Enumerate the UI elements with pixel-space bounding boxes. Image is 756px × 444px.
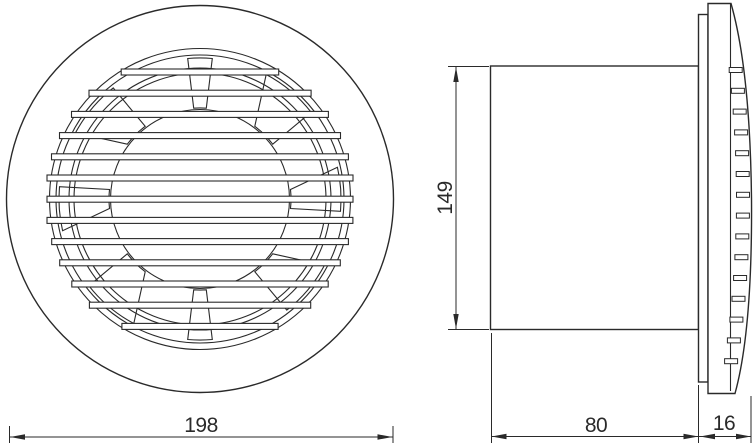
grille-slat bbox=[121, 69, 279, 75]
front-view bbox=[7, 6, 394, 393]
cover-vent-slot bbox=[736, 172, 749, 177]
dimension-label-16: 16 bbox=[713, 412, 735, 435]
cover-vent-slot bbox=[735, 255, 748, 260]
dimension-label-80: 80 bbox=[585, 414, 607, 437]
impeller-blade bbox=[188, 58, 213, 108]
cover-vent-slot bbox=[736, 213, 749, 218]
cover-vent-slot bbox=[734, 276, 747, 281]
grille-slat bbox=[60, 260, 341, 266]
arrow-up bbox=[453, 67, 458, 82]
fan-technical-drawing: 198 149 80 16 bbox=[0, 0, 756, 444]
cover-vent-slot bbox=[729, 68, 742, 73]
arrow-down bbox=[453, 314, 458, 329]
cover-vent-slot bbox=[731, 88, 744, 93]
grille-slat bbox=[72, 111, 329, 117]
dimension-cover-depth: 16 bbox=[699, 396, 752, 443]
front-cover-profile bbox=[708, 4, 752, 394]
dimension-side-depth: 80 bbox=[492, 333, 699, 443]
cover-vent-slot bbox=[736, 151, 749, 156]
cover-vent-slot bbox=[725, 359, 738, 364]
arrow-left bbox=[10, 434, 25, 439]
dimension-label-149: 149 bbox=[434, 181, 457, 215]
grille-slat bbox=[47, 175, 353, 181]
grille-slat bbox=[122, 323, 278, 329]
arrow-right bbox=[736, 434, 751, 439]
impeller-blade bbox=[291, 167, 342, 211]
cover-vent-slot bbox=[733, 109, 746, 114]
dimension-label-198: 198 bbox=[184, 414, 218, 437]
arrow-right bbox=[684, 434, 699, 439]
arrow-left bbox=[492, 434, 507, 439]
cover-vent-slot bbox=[737, 192, 750, 197]
grille-slat bbox=[52, 239, 349, 245]
arrow-right bbox=[378, 434, 393, 439]
grille-slat bbox=[47, 196, 353, 202]
side-view bbox=[491, 4, 752, 394]
impeller-blade bbox=[59, 187, 110, 231]
cover-vent-slot bbox=[736, 234, 749, 239]
grille-slat bbox=[89, 302, 310, 308]
grille-slat bbox=[60, 133, 341, 139]
cover-vent-slot bbox=[727, 338, 740, 343]
cover-vent-slot bbox=[732, 296, 745, 301]
duct-body bbox=[491, 66, 699, 330]
grille-slat bbox=[89, 90, 311, 96]
grille-slat bbox=[52, 154, 349, 160]
cover-vent-slot bbox=[735, 130, 748, 135]
cover-vent-slot bbox=[730, 317, 743, 322]
dimension-side-height: 149 bbox=[434, 67, 489, 330]
impeller-blade bbox=[188, 290, 213, 340]
dimension-front-diameter: 198 bbox=[10, 414, 394, 443]
mounting-flange bbox=[699, 15, 709, 383]
grille-slat bbox=[72, 281, 328, 287]
drawing-svg: 198 149 80 16 bbox=[0, 0, 756, 444]
grille-slat bbox=[47, 217, 353, 223]
